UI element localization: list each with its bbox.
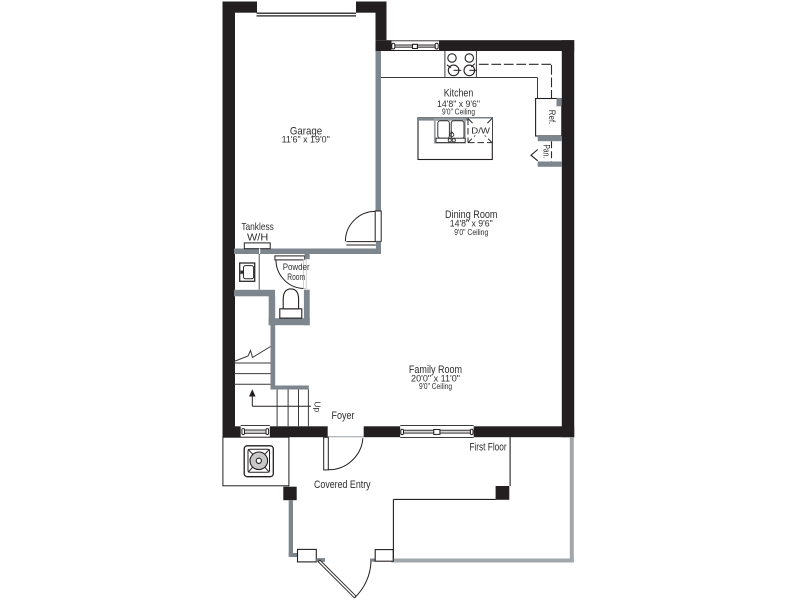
svg-text:Foyer: Foyer bbox=[332, 410, 355, 422]
svg-text:9'0" Ceiling: 9'0" Ceiling bbox=[442, 108, 475, 117]
svg-text:D/W: D/W bbox=[471, 125, 490, 135]
svg-text:9'0" Ceiling: 9'0" Ceiling bbox=[454, 228, 488, 237]
svg-text:W/H: W/H bbox=[247, 232, 268, 244]
svg-text:Powder: Powder bbox=[283, 262, 310, 272]
svg-text:9'0" Ceiling: 9'0" Ceiling bbox=[419, 382, 452, 391]
svg-text:First Floor: First Floor bbox=[469, 441, 507, 453]
svg-text:Covered Entry: Covered Entry bbox=[314, 479, 371, 491]
svg-text:Ref.: Ref. bbox=[546, 110, 557, 125]
svg-text:11'6" x 19'0": 11'6" x 19'0" bbox=[282, 135, 330, 146]
svg-text:Pan.: Pan. bbox=[542, 145, 552, 159]
svg-text:Up: Up bbox=[313, 402, 323, 413]
svg-text:Room: Room bbox=[287, 272, 305, 282]
